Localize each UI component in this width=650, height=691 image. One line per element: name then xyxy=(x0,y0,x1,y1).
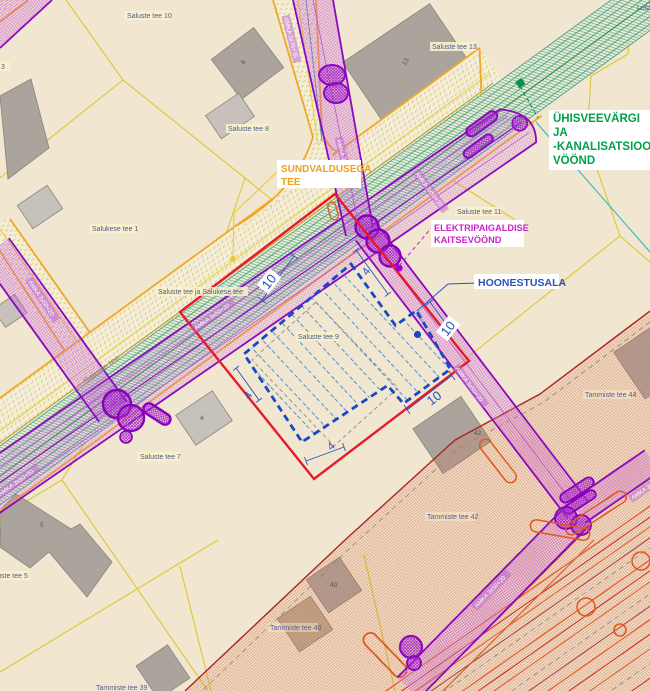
svg-text:JA: JA xyxy=(553,127,568,139)
svg-text:ELEKTRIPAIGALDISE: ELEKTRIPAIGALDISE xyxy=(434,223,529,233)
svg-text:Saluste tee 5: Saluste tee 5 xyxy=(0,573,28,580)
svg-text:Tammiste tee 40: Tammiste tee 40 xyxy=(270,625,321,632)
svg-text:Saluste tee ja Salukese tee: Saluste tee ja Salukese tee xyxy=(158,289,243,296)
svg-text:Tammiste tee 42: Tammiste tee 42 xyxy=(427,514,478,521)
svg-text:Saluste tee 11: Saluste tee 11 xyxy=(457,209,501,216)
svg-text:SUNDVALDUSEGA: SUNDVALDUSEGA xyxy=(281,164,371,175)
svg-text:KAITSEVÖÖND: KAITSEVÖÖND xyxy=(434,235,502,245)
svg-text:Saluste tee 8: Saluste tee 8 xyxy=(228,126,269,133)
svg-text:5: 5 xyxy=(40,522,44,529)
svg-text:-KANALISATSIOONI: -KANALISATSIOONI xyxy=(553,141,650,153)
svg-text:ÜHISVEEVÄRGI: ÜHISVEEVÄRGI xyxy=(553,112,640,125)
svg-text:4: 4 xyxy=(200,415,204,422)
svg-text:TEE: TEE xyxy=(281,177,301,188)
svg-text:Tammiste tee 44: Tammiste tee 44 xyxy=(585,392,636,399)
svg-text:Tammiste tee 39: Tammiste tee 39 xyxy=(96,685,147,691)
svg-text:Saluste tee 10: Saluste tee 10 xyxy=(127,13,172,20)
svg-text:Lusthoone: Lusthoone xyxy=(637,5,650,12)
svg-text:VÖÖND: VÖÖND xyxy=(553,154,595,167)
svg-text:Saluste tee 7: Saluste tee 7 xyxy=(140,454,181,461)
svg-text:Salukese tee 1: Salukese tee 1 xyxy=(92,226,138,233)
svg-text:40: 40 xyxy=(330,582,338,589)
svg-text:Saluste tee 3: Saluste tee 3 xyxy=(0,64,5,71)
svg-text:42: 42 xyxy=(474,430,482,437)
svg-text:HOONESTUSALA: HOONESTUSALA xyxy=(478,277,567,289)
svg-text:Saluste tee 9: Saluste tee 9 xyxy=(298,334,339,341)
svg-text:Saluste tee 13: Saluste tee 13 xyxy=(432,44,477,51)
